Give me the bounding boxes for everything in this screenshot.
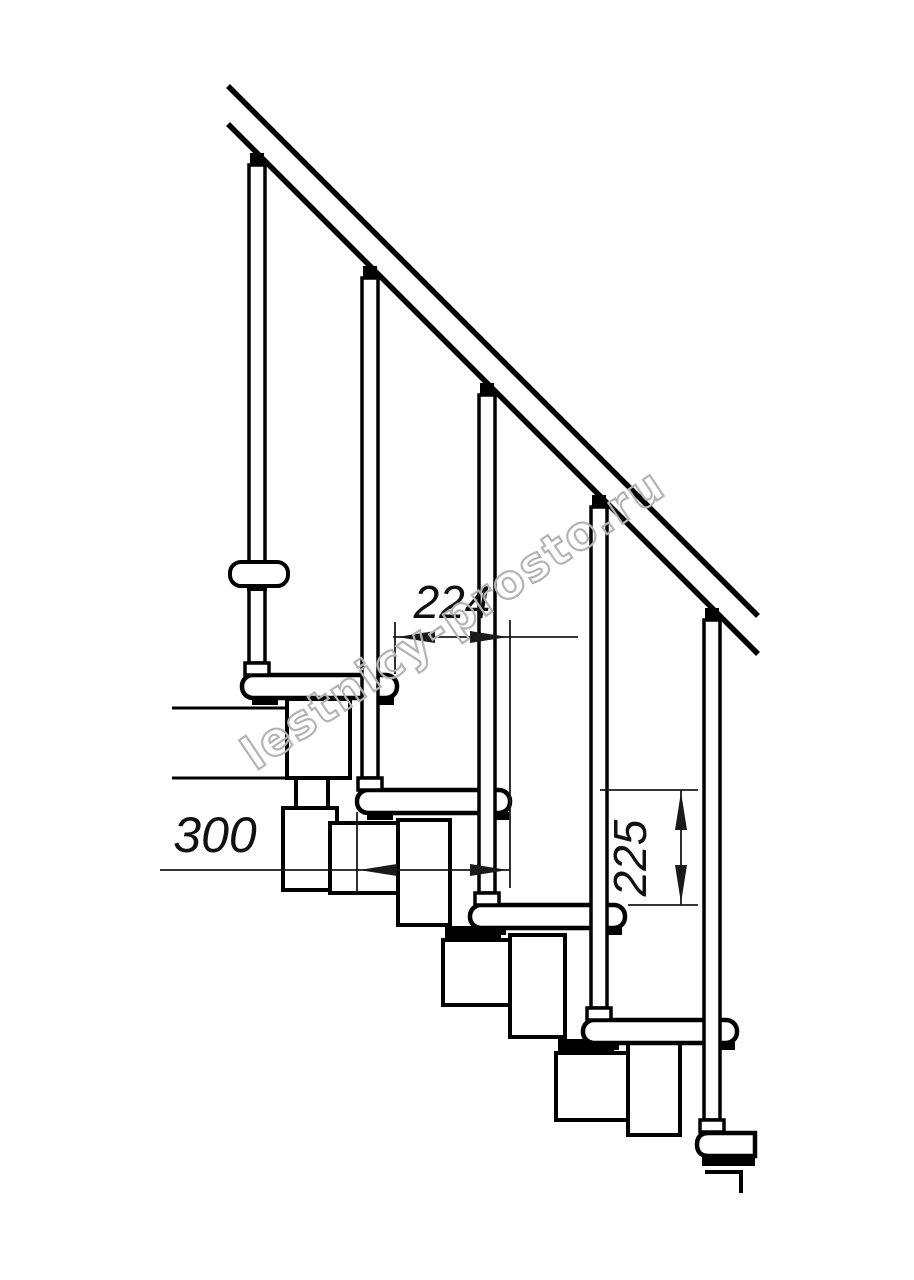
module-box <box>443 940 517 1005</box>
dimension-225: 225 <box>600 790 698 905</box>
module-box <box>510 935 565 1037</box>
baluster-clamp <box>230 562 288 586</box>
dimension-225-label: 225 <box>604 819 656 897</box>
arrow-up-icon <box>675 792 687 830</box>
baluster-4 <box>587 495 611 1020</box>
module-box <box>556 1053 630 1120</box>
baluster-1 <box>230 153 288 675</box>
baluster-collar <box>358 778 382 790</box>
baluster-collar <box>700 1120 724 1132</box>
step-5 <box>697 1133 755 1156</box>
support-modules <box>283 699 741 1193</box>
dimension-300-label: 300 <box>173 807 257 863</box>
baluster-collar <box>475 893 499 905</box>
baluster-collar <box>587 1008 611 1020</box>
module-base-line <box>705 1172 741 1193</box>
baluster-5 <box>700 608 724 1132</box>
baluster-3 <box>475 383 499 905</box>
baluster-collar <box>245 663 269 675</box>
module-box <box>398 820 450 925</box>
module-box <box>330 823 403 893</box>
module-box <box>628 1042 680 1135</box>
stair-drawing: 224 300 225 lestnicy-prosto.ru <box>0 0 914 1280</box>
arrow-down-icon <box>675 865 687 903</box>
